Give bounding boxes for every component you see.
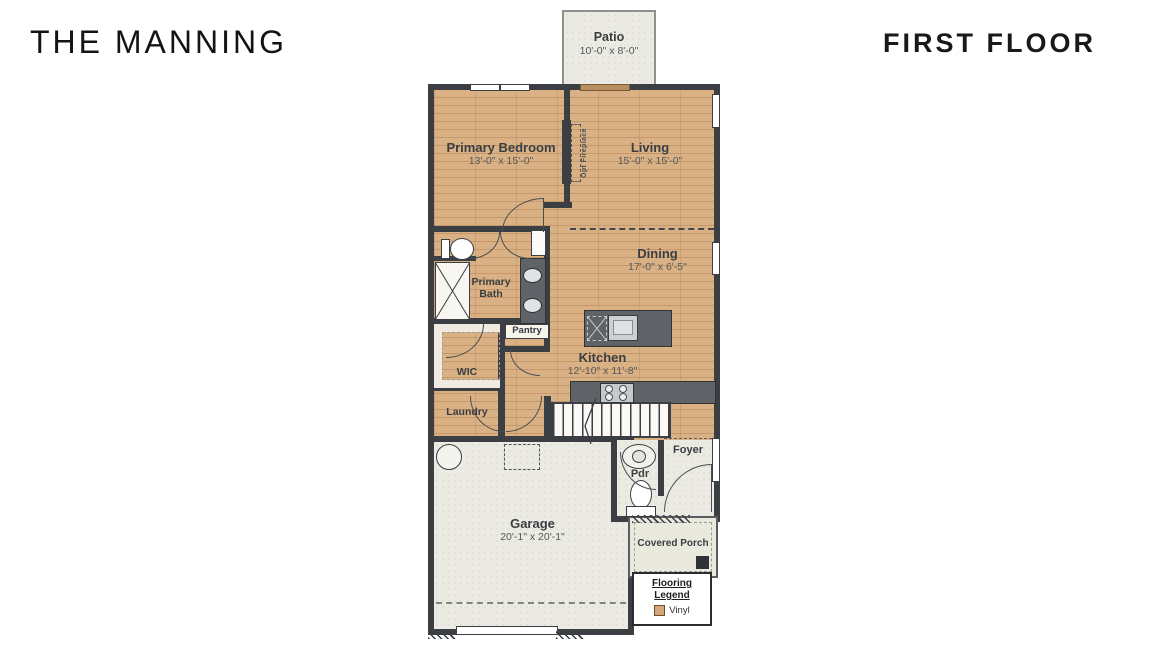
flooring-legend: Flooring Legend Vinyl	[632, 572, 712, 626]
vinyl-swatch-icon	[654, 605, 665, 616]
burner-icon	[619, 393, 627, 401]
room-label-dining: Dining 17'-0" x 6'-5"	[600, 246, 715, 274]
foyer-break-line	[664, 438, 712, 439]
room-label-pantry: Pantry	[505, 324, 549, 339]
linen-cabinet	[531, 230, 546, 256]
room-label-wic: WIC	[438, 366, 496, 378]
burner-icon	[619, 385, 627, 393]
burner-icon	[605, 385, 613, 393]
room-label-foyer: Foyer	[662, 444, 714, 457]
porch-hatch	[632, 515, 690, 523]
legend-title: Flooring Legend	[646, 578, 698, 602]
fireplace-dashed-box	[571, 124, 581, 182]
window	[712, 94, 720, 128]
room-label-primary-bath: Primary Bath	[462, 276, 520, 301]
vanity-sink	[523, 268, 542, 283]
legend-item-vinyl: Vinyl	[634, 605, 710, 616]
stairs	[551, 402, 671, 438]
window	[500, 84, 530, 91]
living-dining-break-line	[570, 228, 714, 230]
wall-kitchen-left	[544, 396, 551, 442]
room-label-laundry: Laundry	[434, 406, 500, 418]
stair-break-line	[582, 398, 602, 444]
patio-door	[580, 84, 630, 91]
room-label-covered-porch: Covered Porch	[630, 538, 716, 550]
floor-title: FIRST FLOOR	[883, 28, 1096, 59]
floor-plan: THE MANNING FIRST FLOOR Opt Fireplace	[0, 0, 1150, 651]
vanity-sink	[523, 298, 542, 313]
room-label-primary-bedroom: Primary Bedroom 13'-0" x 15'-0"	[432, 140, 570, 168]
porch-post	[696, 556, 709, 569]
foundation-hatch	[428, 630, 456, 639]
island-sink-basin	[613, 320, 633, 335]
dishwasher-x-icon	[587, 316, 607, 341]
foundation-hatch	[556, 630, 584, 639]
wall-bedroom-corner	[544, 202, 572, 208]
window	[470, 84, 500, 91]
room-label-garage: Garage 20'-1" x 20'-1"	[440, 516, 625, 544]
garage-door-recess	[456, 626, 558, 635]
room-label-living: Living 15'-0" x 15'-0"	[585, 140, 715, 168]
water-heater	[436, 444, 462, 470]
utility-dashed-box	[504, 444, 540, 470]
garage-door-header-line	[436, 602, 626, 604]
room-label-kitchen: Kitchen 12'-10" x 11'-8"	[545, 350, 660, 378]
room-label-pdr: Pdr	[620, 468, 660, 481]
plan-title: THE MANNING	[30, 24, 287, 61]
burner-icon	[605, 393, 613, 401]
toilet-tank	[441, 239, 450, 259]
room-label-patio: Patio 10'-0" x 8'-0"	[562, 30, 656, 57]
